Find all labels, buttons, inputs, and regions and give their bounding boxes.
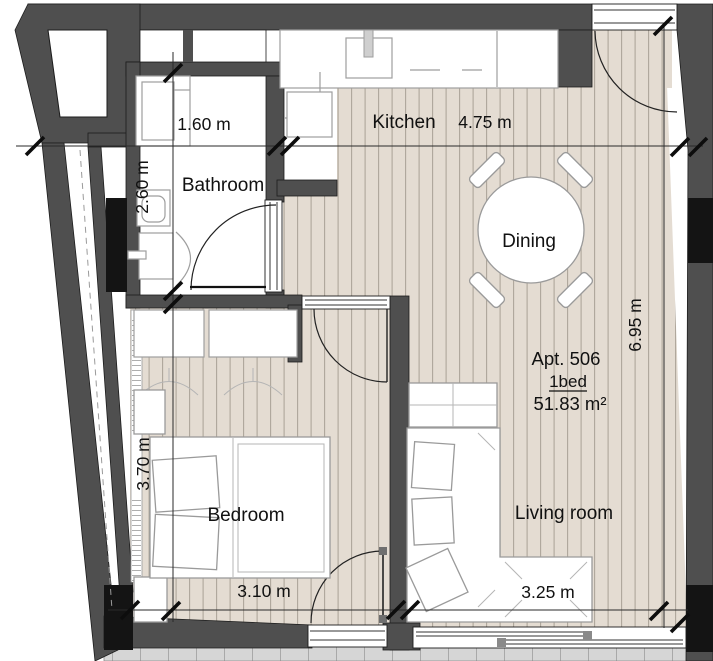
sofa-pillow [412, 497, 454, 545]
tv-sideboard [409, 383, 497, 427]
duct-divider [183, 30, 193, 62]
label-bathroom: Bathroom [182, 175, 264, 196]
column-bottom-right [686, 585, 713, 652]
label-bedroom: Bedroom [207, 505, 284, 526]
kitchen-appliance [287, 92, 332, 137]
shower [136, 76, 190, 146]
apartment-area: 51.83 m² [533, 393, 606, 414]
dim-bedroom-depth: 3.70 m [133, 437, 153, 491]
living-room-window [413, 627, 686, 648]
dim-bathroom-depth: 2.60 m [132, 160, 152, 214]
floor-plan-svg: 1.60 m Kitchen 4.75 m Bathroom 2.60 m Di… [0, 0, 713, 661]
dim-kitchen-width: 4.75 m [458, 112, 512, 132]
dim-bathroom-width: 1.60 m [177, 114, 231, 134]
dim-living-width: 3.25 m [521, 582, 575, 602]
label-living-room: Living room [515, 503, 613, 524]
sofa-pillow [411, 442, 454, 491]
nightstand-bottom [134, 577, 167, 622]
column-bottom-left [104, 585, 133, 650]
label-dining: Dining [502, 231, 556, 252]
apartment-number: Apt. 506 [532, 348, 601, 369]
pillow [152, 456, 219, 512]
nightstand-top [134, 390, 165, 434]
wall-accent-left [106, 198, 127, 292]
floor-plan: 1.60 m Kitchen 4.75 m Bathroom 2.60 m Di… [0, 0, 713, 661]
dining-table [478, 177, 584, 283]
dim-overall-depth: 6.95 m [625, 298, 645, 352]
apartment-type: 1bed [549, 372, 587, 391]
kitchen-faucet [364, 30, 373, 57]
duct-shaft [140, 30, 266, 62]
wall-accent-right [688, 198, 713, 263]
label-kitchen: Kitchen [372, 112, 435, 133]
dim-bedroom-width: 3.10 m [237, 581, 291, 601]
bathroom-door [190, 200, 282, 292]
